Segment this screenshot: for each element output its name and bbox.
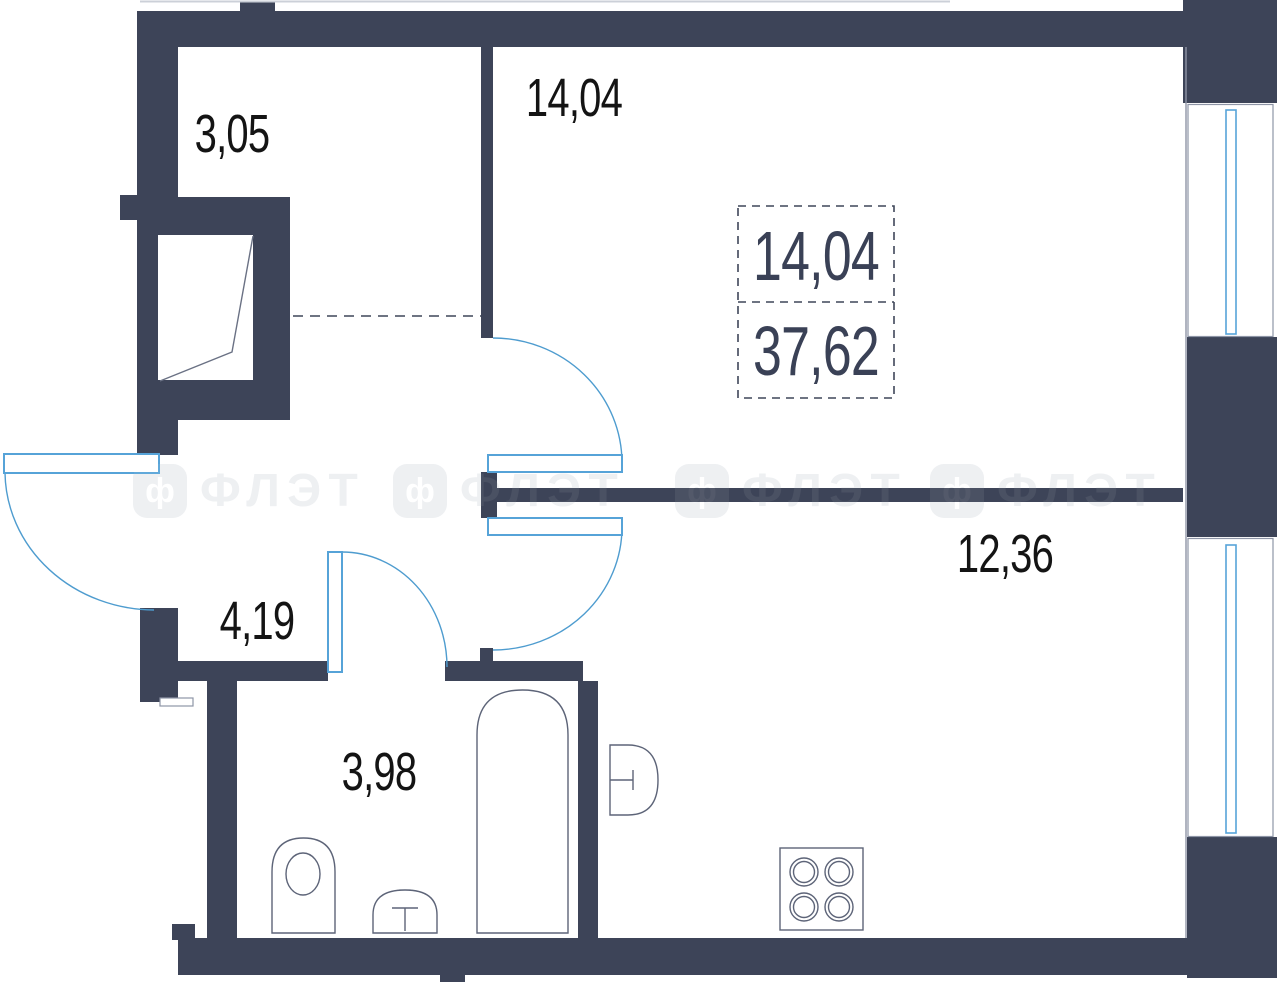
room-area-label: 4,19: [220, 590, 295, 652]
summary-living-area-label: 14,04: [753, 216, 879, 296]
room-area-label: 12,36: [957, 523, 1053, 585]
labels: 3,05 14,04 4,19 3,98 12,36 14,04 37,62: [0, 0, 1280, 982]
summary-total-area-label: 37,62: [753, 311, 879, 391]
room-area-label: 14,04: [526, 67, 622, 129]
floor-plan: ф ФЛЭТ ф ФЛЭТ ф ФЛЭТ ф ФЛЭТ: [0, 0, 1280, 982]
room-area-label: 3,98: [342, 741, 417, 803]
room-area-label: 3,05: [195, 103, 270, 165]
